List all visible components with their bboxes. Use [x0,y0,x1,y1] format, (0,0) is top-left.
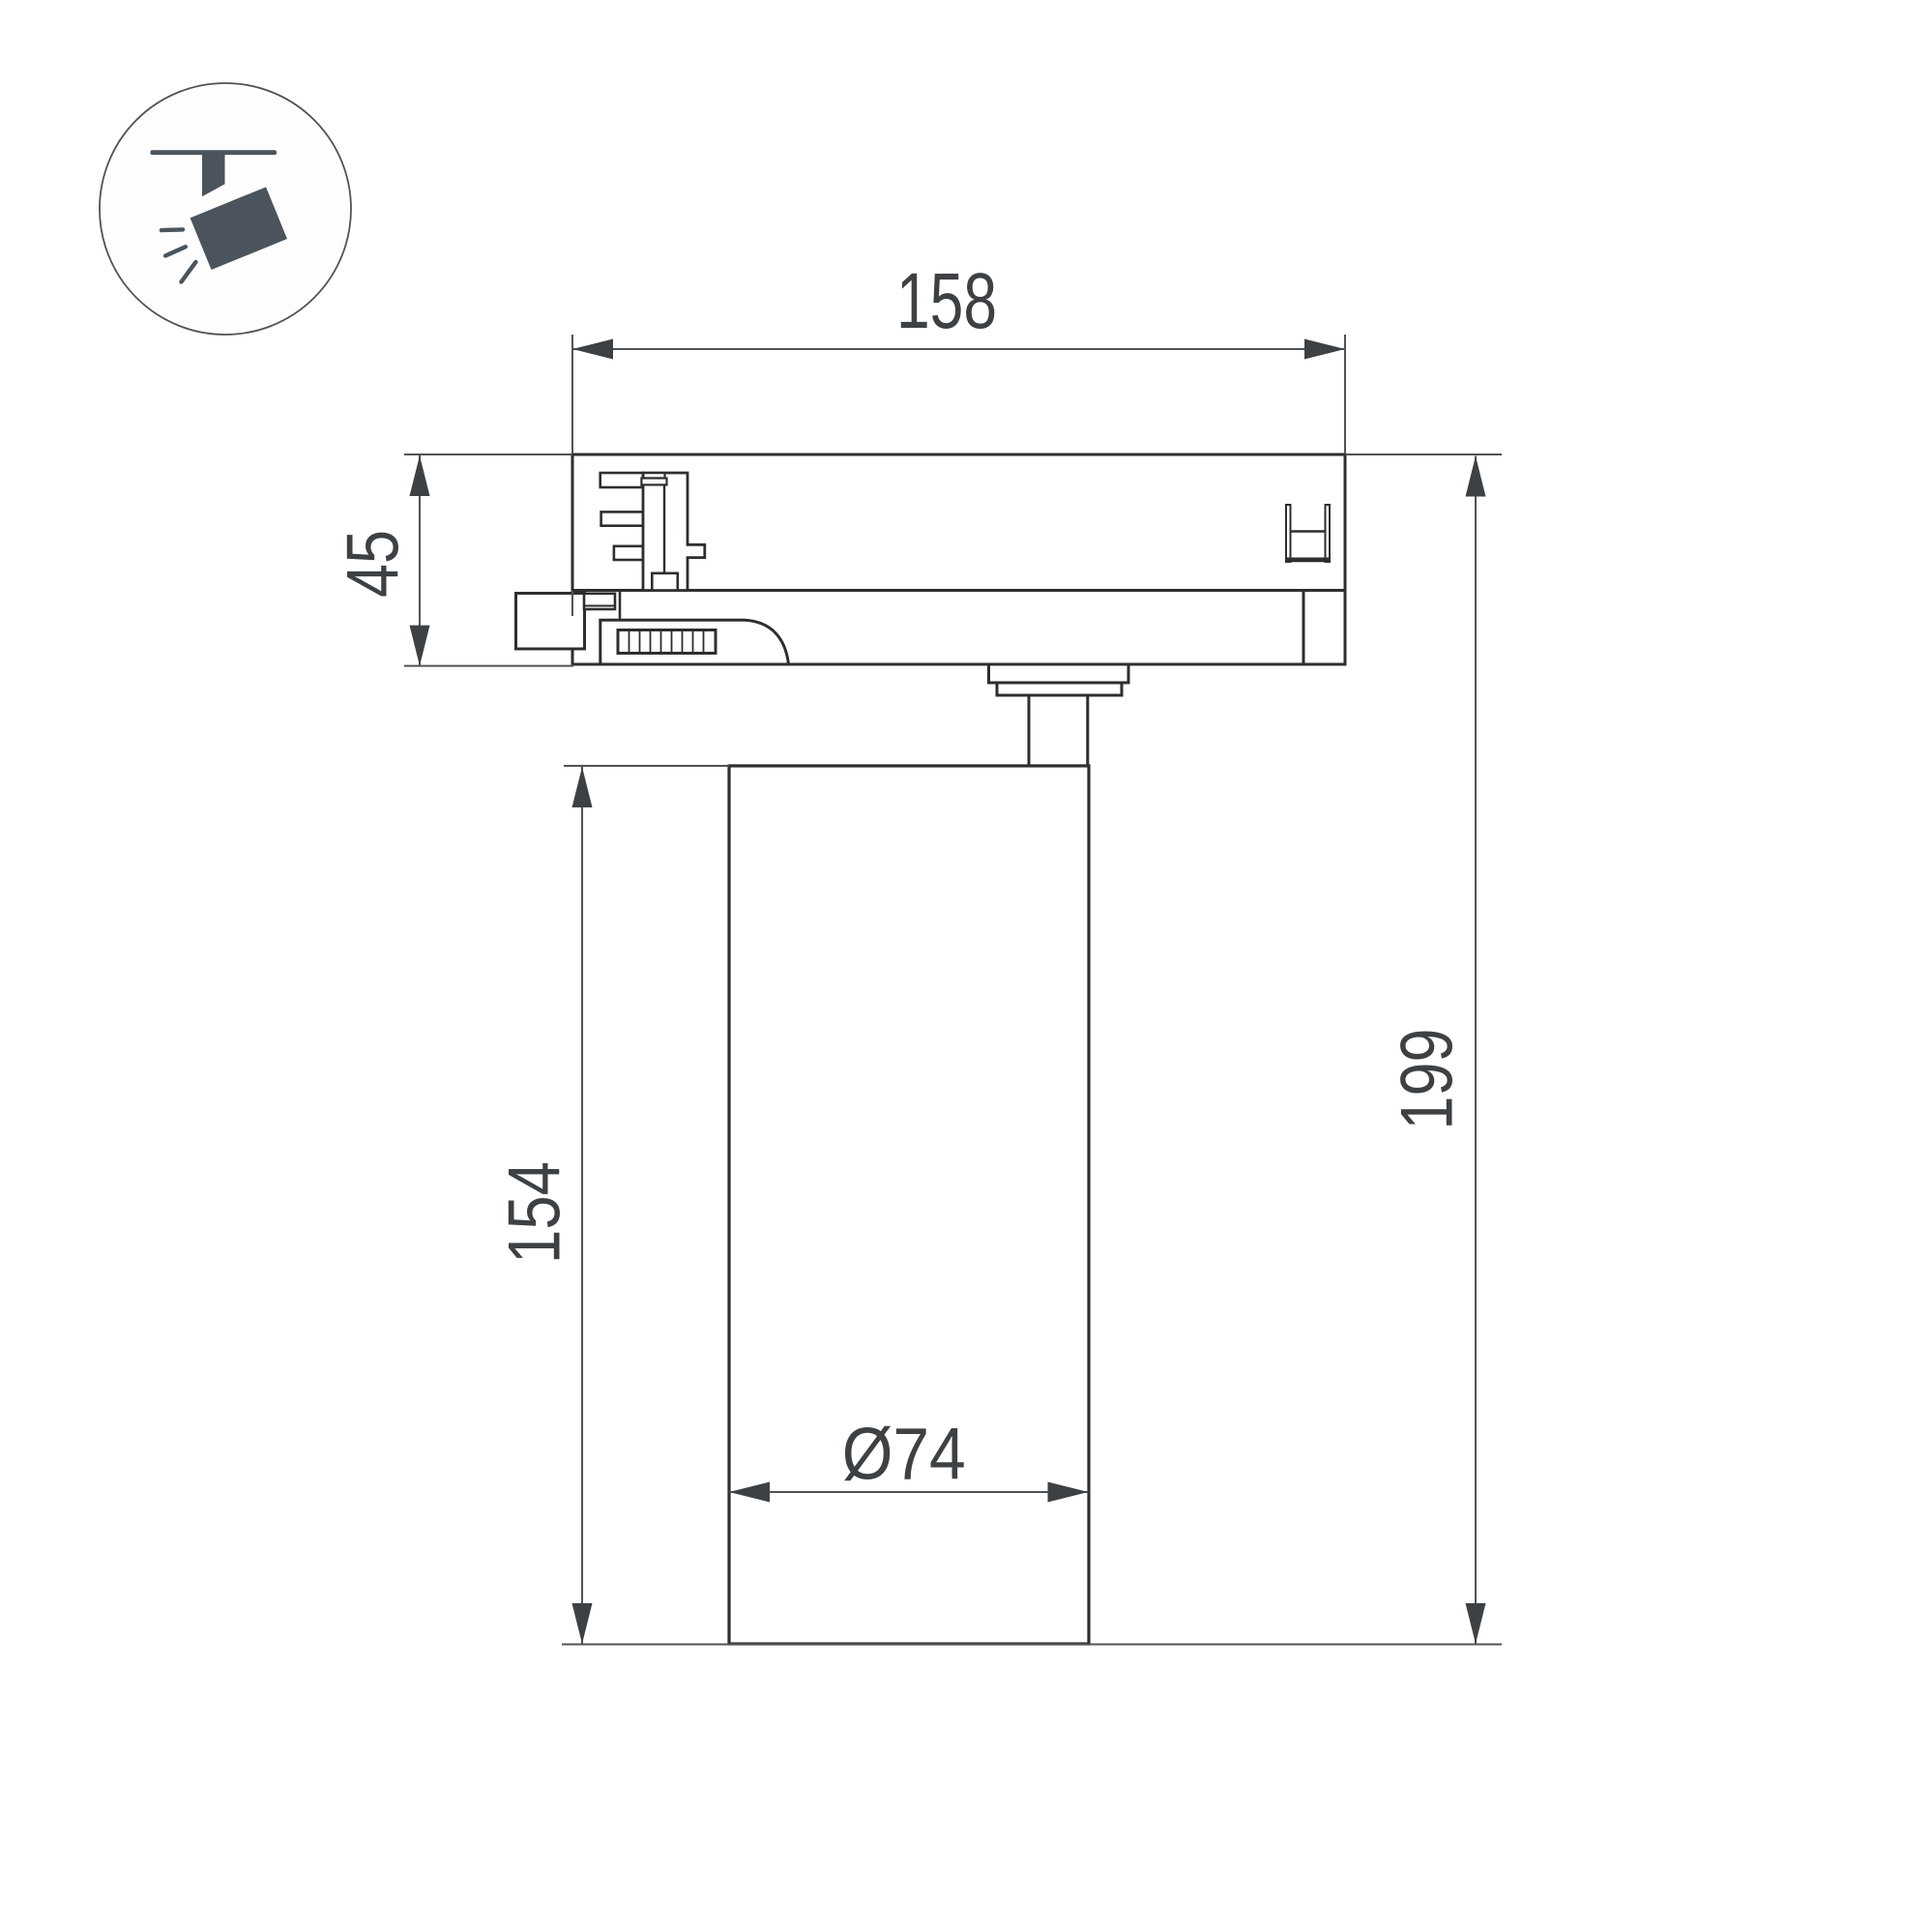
svg-text:199: 199 [1387,1029,1469,1130]
svg-text:154: 154 [494,1161,576,1264]
svg-text:Ø74: Ø74 [842,1414,966,1496]
svg-text:45: 45 [333,530,415,598]
svg-text:158: 158 [896,257,997,345]
